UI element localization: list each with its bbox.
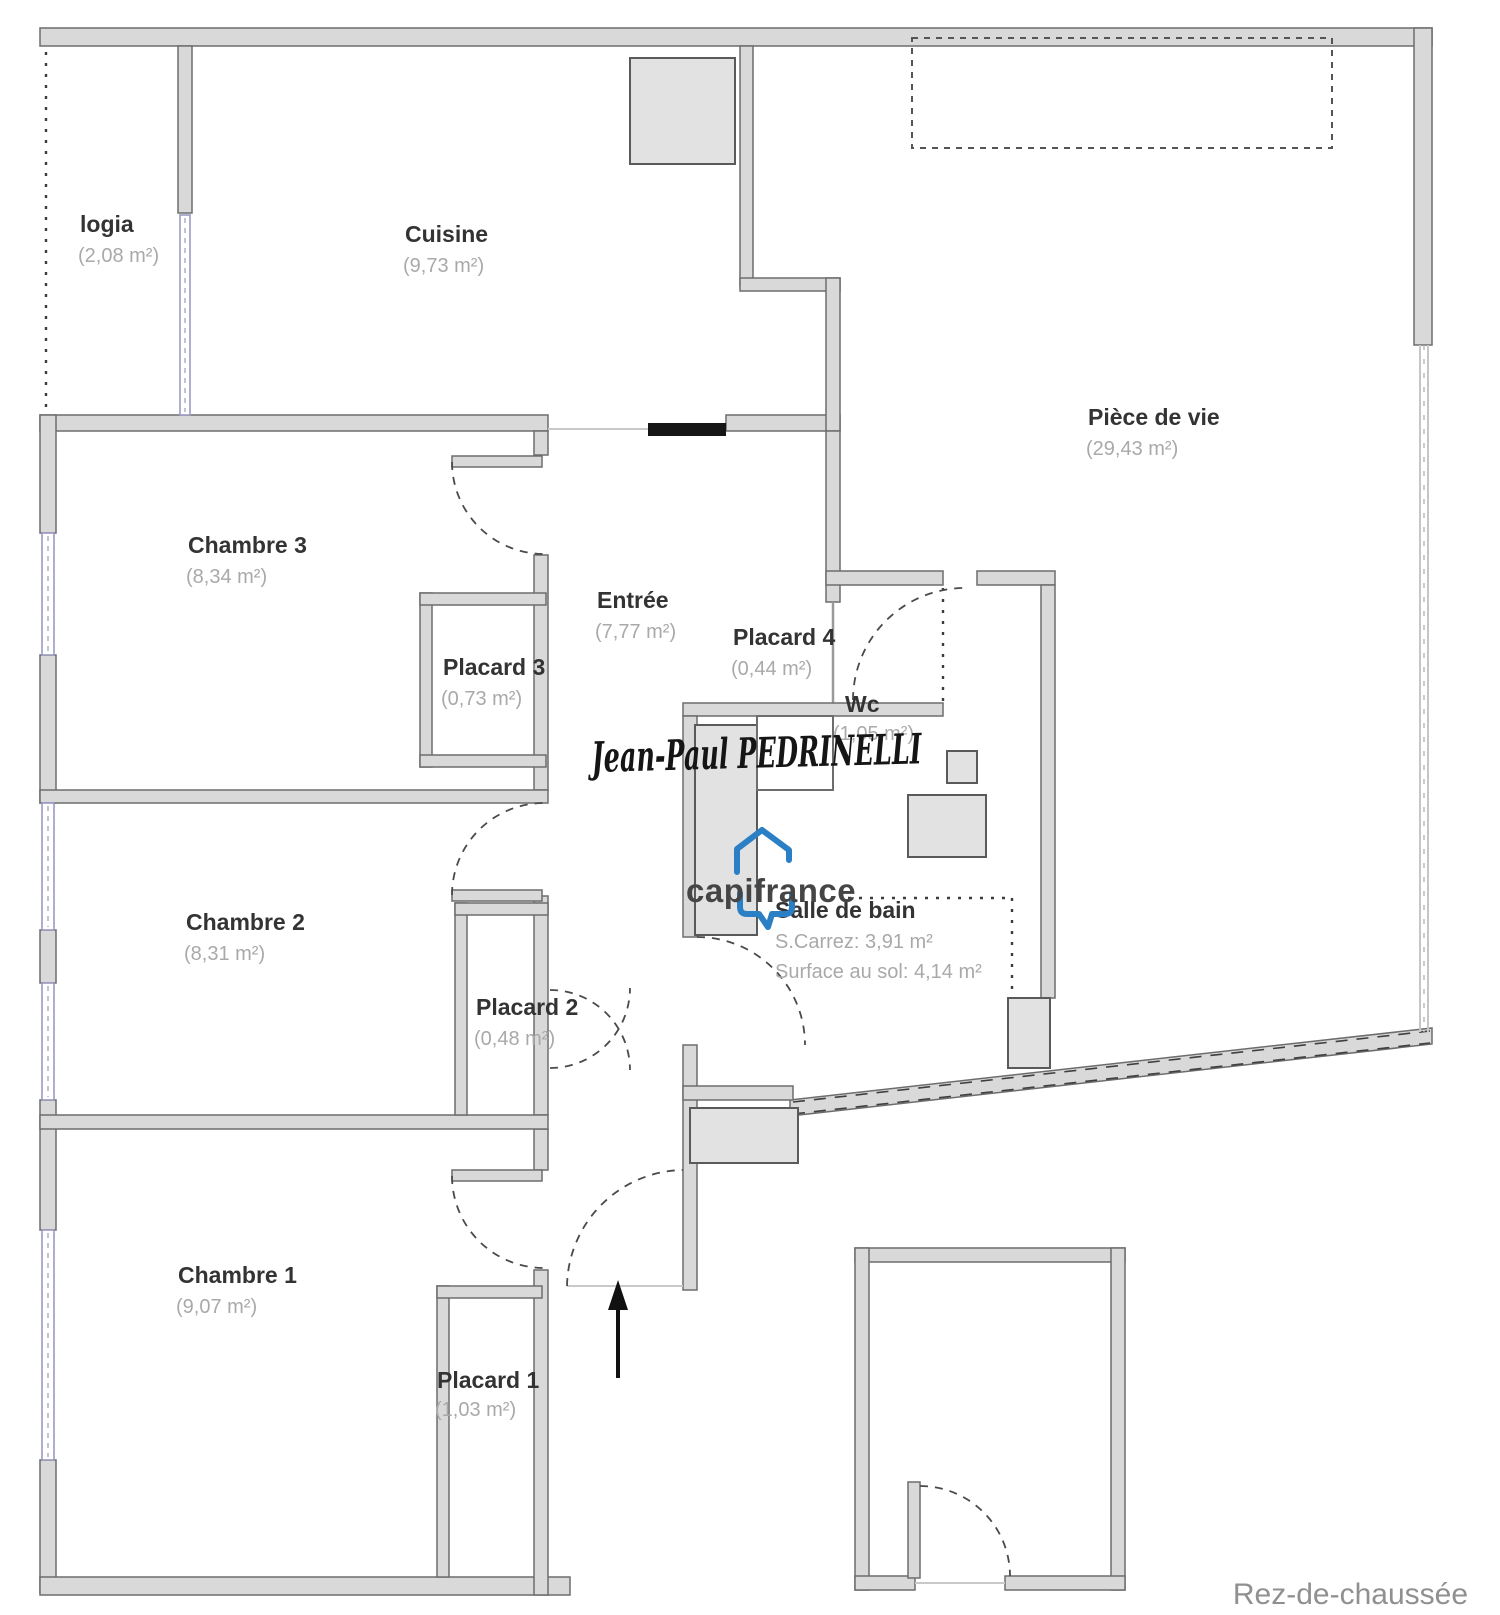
- opening-lintel: [648, 423, 726, 436]
- svg-text:(8,34 m²): (8,34 m²): [186, 566, 267, 588]
- interior-walls: [40, 46, 1055, 1595]
- room-label-logia: logia (2,08 m²): [78, 211, 159, 267]
- floor-caption: Rez-de-chaussée: [1233, 1578, 1468, 1611]
- svg-text:Surface au sol: 4,14 m²: Surface au sol: 4,14 m²: [775, 961, 982, 983]
- annex-room-walls: [855, 1248, 1125, 1590]
- svg-text:S.Carrez: 3,91 m²: S.Carrez: 3,91 m²: [775, 931, 933, 953]
- agent-watermark: Jean-Paul PEDRINELLI: [587, 724, 923, 782]
- door-arc-annex: [920, 1486, 1010, 1576]
- svg-text:(9,07 m²): (9,07 m²): [176, 1296, 257, 1318]
- window: [42, 1230, 54, 1460]
- door-arc-chambre1: [452, 1176, 544, 1268]
- svg-text:Entrée: Entrée: [597, 587, 669, 613]
- svg-text:Placard 4: Placard 4: [733, 624, 835, 650]
- svg-text:Placard 3: Placard 3: [443, 654, 545, 680]
- svg-text:logia: logia: [80, 211, 134, 237]
- svg-text:(0,44 m²): (0,44 m²): [731, 658, 812, 680]
- duct-blocks: [630, 58, 1050, 1163]
- svg-text:Chambre 3: Chambre 3: [188, 532, 307, 558]
- door-arc-chambre3: [452, 462, 544, 554]
- room-label-chambre2: Chambre 2 (8,31 m²): [184, 909, 305, 965]
- room-label-entree: Entrée (7,77 m²): [595, 587, 676, 643]
- capifrance-logo-text: capifrance: [686, 872, 856, 909]
- svg-text:Pièce de vie: Pièce de vie: [1088, 404, 1220, 430]
- window: [42, 533, 54, 655]
- svg-text:Chambre 2: Chambre 2: [186, 909, 305, 935]
- svg-text:(9,73 m²): (9,73 m²): [403, 255, 484, 277]
- svg-text:(29,43 m²): (29,43 m²): [1086, 438, 1178, 460]
- room-label-chambre3: Chambre 3 (8,34 m²): [186, 532, 307, 588]
- door-arc-main-entry: [567, 1170, 683, 1286]
- room-label-placard2: Placard 2 (0,48 m²): [474, 994, 578, 1050]
- floor-plan: logia (2,08 m²) Cuisine (9,73 m²) Pièce …: [0, 0, 1500, 1615]
- terrace-dashed-outline: [912, 38, 1332, 148]
- svg-text:Placard 2: Placard 2: [476, 994, 578, 1020]
- room-label-placard4: Placard 4 (0,44 m²): [731, 624, 835, 680]
- svg-text:Cuisine: Cuisine: [405, 221, 488, 247]
- window: [180, 215, 190, 415]
- door-arc-chambre2: [452, 803, 544, 895]
- room-label-chambre1: Chambre 1 (9,07 m²): [176, 1262, 297, 1318]
- svg-text:(0,73 m²): (0,73 m²): [441, 688, 522, 710]
- room-label-placard3: Placard 3 (0,73 m²): [441, 654, 545, 710]
- window: [42, 983, 54, 1100]
- svg-text:(8,31 m²): (8,31 m²): [184, 943, 265, 965]
- svg-text:Wc: Wc: [845, 691, 880, 717]
- window: [42, 803, 54, 930]
- svg-text:(0,48 m²): (0,48 m²): [474, 1028, 555, 1050]
- svg-text:Placard 1: Placard 1: [437, 1367, 539, 1393]
- window: [1420, 345, 1428, 1032]
- door-arc-bathroom: [697, 937, 805, 1045]
- room-label-placard1: Placard 1 (1,03 m²): [435, 1367, 539, 1421]
- svg-text:(7,77 m²): (7,77 m²): [595, 621, 676, 643]
- svg-text:(2,08 m²): (2,08 m²): [78, 245, 159, 267]
- svg-text:(1,03 m²): (1,03 m²): [435, 1399, 516, 1421]
- entrance-arrow-icon: [608, 1280, 628, 1378]
- room-label-piece-de-vie: Pièce de vie (29,43 m²): [1086, 404, 1220, 460]
- room-label-salle-de-bain: Salle de bain S.Carrez: 3,91 m² Surface …: [775, 897, 982, 983]
- svg-text:Chambre 1: Chambre 1: [178, 1262, 297, 1288]
- door-arc-wc: [853, 588, 965, 700]
- room-label-cuisine: Cuisine (9,73 m²): [403, 221, 488, 277]
